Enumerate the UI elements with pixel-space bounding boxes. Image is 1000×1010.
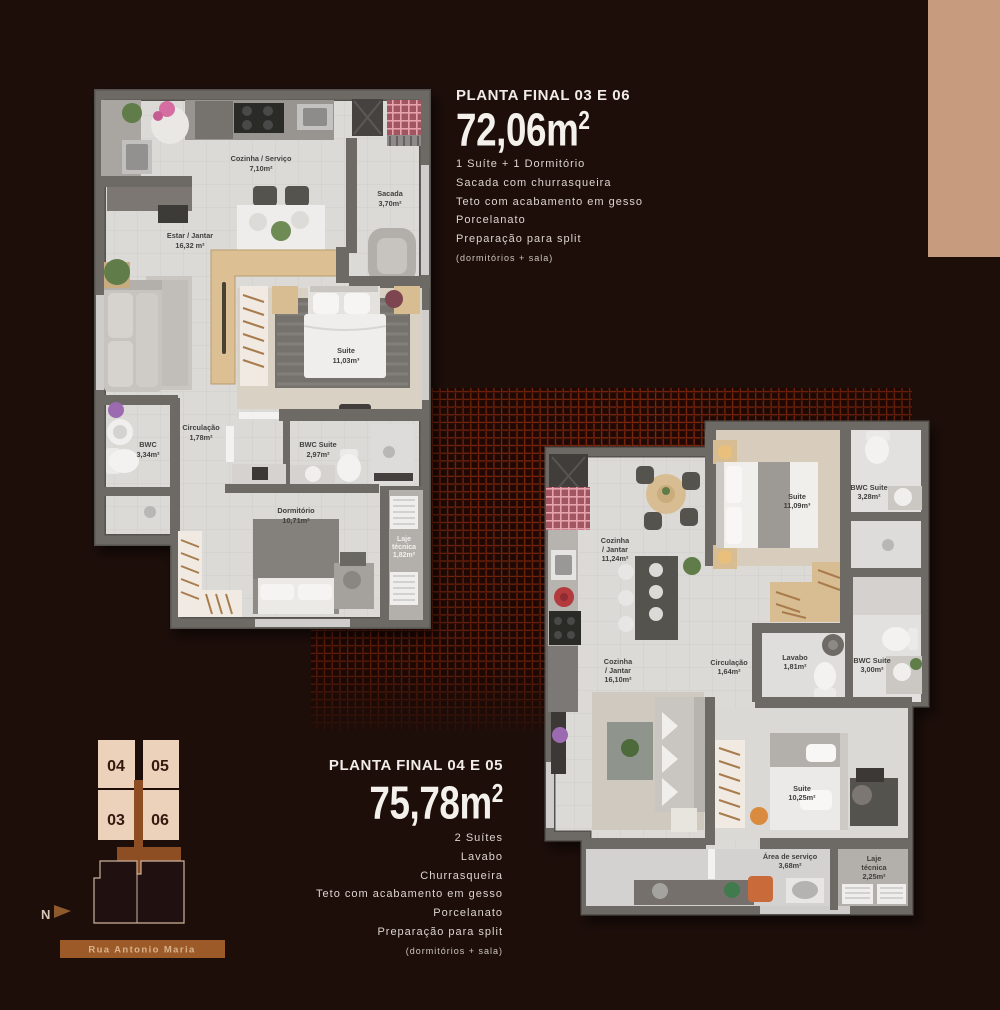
- svg-text:1,81m²: 1,81m²: [783, 662, 807, 671]
- svg-text:10,25m²: 10,25m²: [788, 793, 816, 802]
- svg-text:N: N: [41, 907, 50, 922]
- svg-text:1,64m²: 1,64m²: [717, 667, 741, 676]
- svg-text:Sacada: Sacada: [377, 189, 403, 198]
- svg-text:7,10m²: 7,10m²: [249, 164, 273, 173]
- svg-text:11,09m³: 11,09m³: [784, 501, 811, 510]
- svg-text:11,03m³: 11,03m³: [333, 356, 360, 365]
- svg-text:BWC Suite: BWC Suite: [850, 483, 887, 492]
- svg-text:Estar / Jantar: Estar / Jantar: [167, 231, 213, 240]
- svg-text:2,25m²: 2,25m²: [862, 872, 886, 881]
- svg-text:/ Jantar: / Jantar: [602, 545, 628, 554]
- svg-text:3,70m²: 3,70m²: [378, 199, 402, 208]
- svg-text:Suite: Suite: [788, 492, 806, 501]
- svg-text:Rua Antonio Maria: Rua Antonio Maria: [88, 945, 195, 956]
- svg-text:1,82m²: 1,82m²: [393, 552, 416, 559]
- svg-text:Lavabo: Lavabo: [782, 653, 808, 662]
- svg-text:técnica: técnica: [392, 544, 416, 551]
- svg-text:Laje: Laje: [867, 854, 882, 863]
- svg-text:Cozinha: Cozinha: [604, 657, 633, 666]
- svg-text:10,71m²: 10,71m²: [282, 516, 310, 525]
- svg-text:Área de serviço: Área de serviço: [763, 852, 818, 861]
- svg-text:3,68m²: 3,68m²: [778, 861, 802, 870]
- svg-text:BWC: BWC: [139, 440, 157, 449]
- svg-text:1,78m²: 1,78m²: [189, 433, 213, 442]
- svg-text:Circulação: Circulação: [710, 658, 748, 667]
- svg-text:06: 06: [151, 812, 169, 829]
- svg-text:16,10m²: 16,10m²: [604, 675, 632, 684]
- svg-text:03: 03: [107, 812, 125, 829]
- svg-text:05: 05: [151, 758, 169, 775]
- svg-text:Laje: Laje: [397, 536, 411, 543]
- svg-text:Cozinha: Cozinha: [601, 536, 630, 545]
- svg-text:3,28m²: 3,28m²: [857, 492, 881, 501]
- svg-text:3,34m²: 3,34m²: [136, 450, 160, 459]
- svg-text:técnica: técnica: [861, 863, 887, 872]
- svg-text:2,97m²: 2,97m²: [306, 450, 330, 459]
- svg-text:Cozinha / Serviço: Cozinha / Serviço: [231, 154, 292, 163]
- svg-text:Suite: Suite: [337, 346, 355, 355]
- svg-text:/ Jantar: / Jantar: [605, 666, 631, 675]
- svg-text:Dormitório: Dormitório: [277, 506, 315, 515]
- svg-text:3,00m²: 3,00m²: [860, 665, 884, 674]
- svg-text:BWC Suite: BWC Suite: [299, 440, 336, 449]
- svg-text:11,24m²: 11,24m²: [602, 554, 629, 563]
- svg-text:16,32 m²: 16,32 m²: [175, 241, 205, 250]
- svg-text:04: 04: [107, 758, 125, 775]
- svg-text:Suite: Suite: [793, 784, 811, 793]
- svg-text:BWC Suite: BWC Suite: [853, 656, 890, 665]
- svg-text:Circulação: Circulação: [182, 423, 220, 432]
